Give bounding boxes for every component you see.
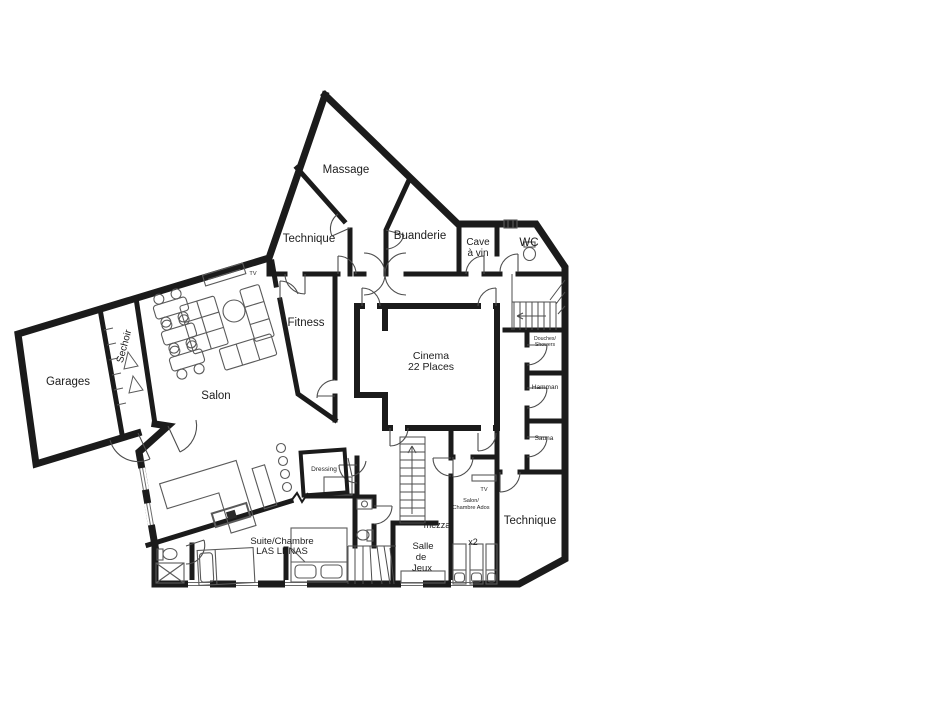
bathroom-fixtures [156,549,184,584]
room-label-suite-2: LAS LENAS [256,546,308,557]
label-tv-salon: TV [249,271,256,277]
technique-bottom-door [500,472,520,492]
ados-bed-1 [453,544,466,584]
room-label-salle-2: de [416,552,427,563]
salon-door [280,281,298,300]
stool [283,483,292,492]
room-label-salle-1: Salle [412,541,433,552]
stool [277,444,286,453]
door-arcs [110,214,547,564]
room-label-sechoir: Sechoir [115,328,135,364]
stool [281,470,290,479]
label-x2: x2 [468,537,478,547]
room-label-ados-2: Chambre Ados [452,505,489,511]
mezza-door [433,458,451,476]
room-label-douches-2: Showers [535,342,556,348]
room-label-massage: Massage [323,164,370,176]
floor-plan-page: Massage Technique Buanderie Cave à vin W… [0,0,940,723]
single-bed [197,548,255,586]
stairs-upper-right [512,274,565,330]
stairs-mezzanine [400,437,425,523]
label-mezza: mezza [424,520,451,530]
room-label-sauna: Sauna [535,435,554,442]
room-label-technique-top: Technique [283,233,335,245]
technique-top-door [338,256,356,274]
room-label-salon: Salon [201,390,230,402]
bar-shelf [252,465,277,509]
room-label-cave-2: à vin [467,248,488,259]
wc-door [500,254,518,272]
fitness-door-side [317,380,335,398]
room-label-hamman: Hamman [532,384,559,391]
round-table [223,300,245,322]
room-label-cave-1: Cave [466,237,490,248]
ados-door-upper [478,433,496,451]
room-label-technique-bottom: Technique [504,515,556,527]
room-label-buanderie: Buanderie [394,230,446,242]
room-label-wc: WC [519,237,538,249]
room-label-fitness: Fitness [287,317,324,329]
floor-plan-drawing: Massage Technique Buanderie Cave à vin W… [0,0,940,723]
label-tv-ados: TV [480,487,487,493]
exterior-wall-left-wing [18,95,325,464]
dining-table-3 [166,339,208,381]
toilet-bowl [524,248,536,261]
hamman-door [527,388,547,408]
tv-ados [472,475,496,481]
wc-mid-door [374,506,392,524]
room-label-garages: Garages [46,376,90,388]
fitness-door-top [285,274,305,294]
room-label-dressing: Dressing [311,466,337,473]
toilet-bowl [163,549,177,560]
room-label-ados-1: Salon/ [463,498,479,504]
stool [279,457,288,466]
wc-mid-fixtures [357,499,373,541]
room-label-salle-3: Jeux [412,563,432,574]
room-label-cinema-2: 22 Places [408,361,454,373]
ados-door-top [453,457,473,477]
douches-door [527,345,547,365]
ados-bed-2 [470,544,483,584]
bathroom-door [186,540,205,564]
stairs-winder-bottom [348,546,396,584]
